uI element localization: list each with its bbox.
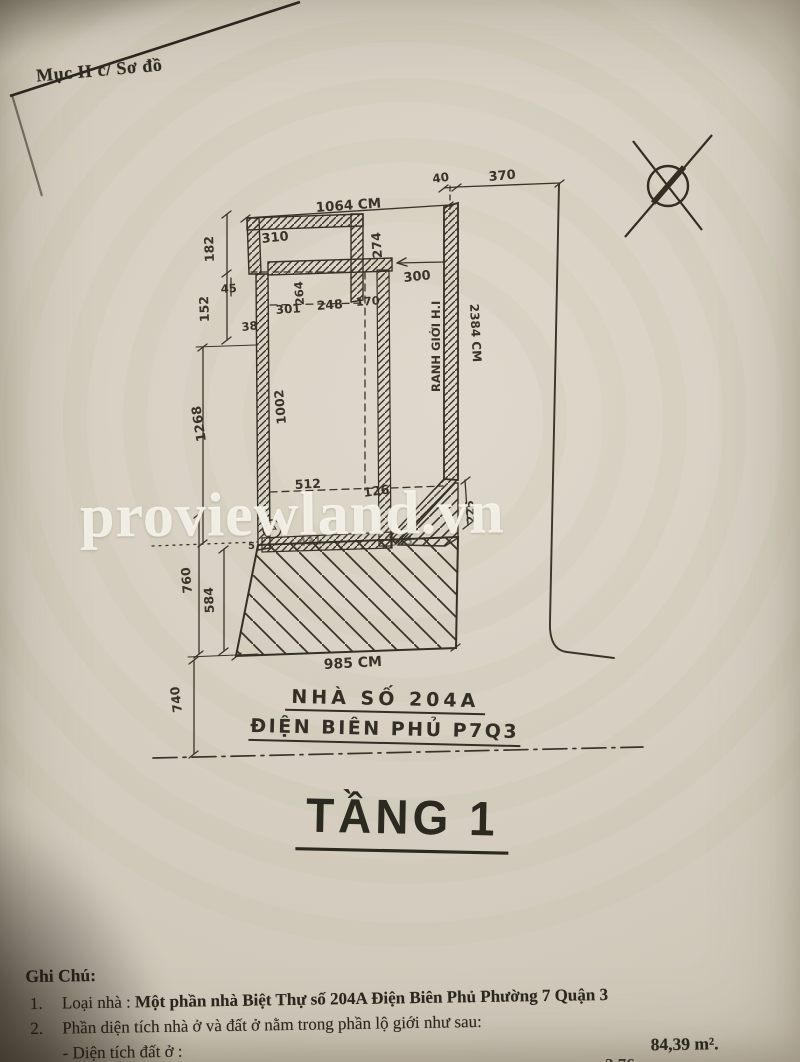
land-area-value: 84,39 m². <box>650 1031 718 1057</box>
dim-label-274: 274 <box>368 231 385 258</box>
dim-label-152: 152 <box>196 296 212 323</box>
dim-label-ranh-gi-i-h-i: RANH GIỚI H.I <box>428 301 443 392</box>
dim-label-170: 170 <box>355 293 380 309</box>
dim-label-264: 264 <box>291 281 307 306</box>
dim-label-1002: 1002 <box>271 389 289 425</box>
dim-label-248: 248 <box>316 296 343 313</box>
dim-label-1064-cm: 1064 CM <box>315 195 382 216</box>
dim-label-182: 182 <box>201 236 217 263</box>
dim-label-370: 370 <box>488 168 516 185</box>
dim-label-40: 40 <box>431 170 449 186</box>
north-compass-icon <box>625 135 712 237</box>
cropped-text-fragment: 2,76 <box>605 1055 675 1062</box>
dim-label-1268: 1268 <box>189 405 209 443</box>
dim-label-310: 310 <box>261 229 290 247</box>
dim-label-300: 300 <box>403 268 432 286</box>
dim-label-2384-cm: 2384 CM <box>467 303 484 362</box>
dim-label-38: 38 <box>241 318 258 334</box>
scanned-document-photo: Mục II c/ Sơ đồ <box>0 0 800 1062</box>
dim-label-45: 45 <box>220 281 237 296</box>
photo-shadow-bottom-left <box>0 520 420 1062</box>
